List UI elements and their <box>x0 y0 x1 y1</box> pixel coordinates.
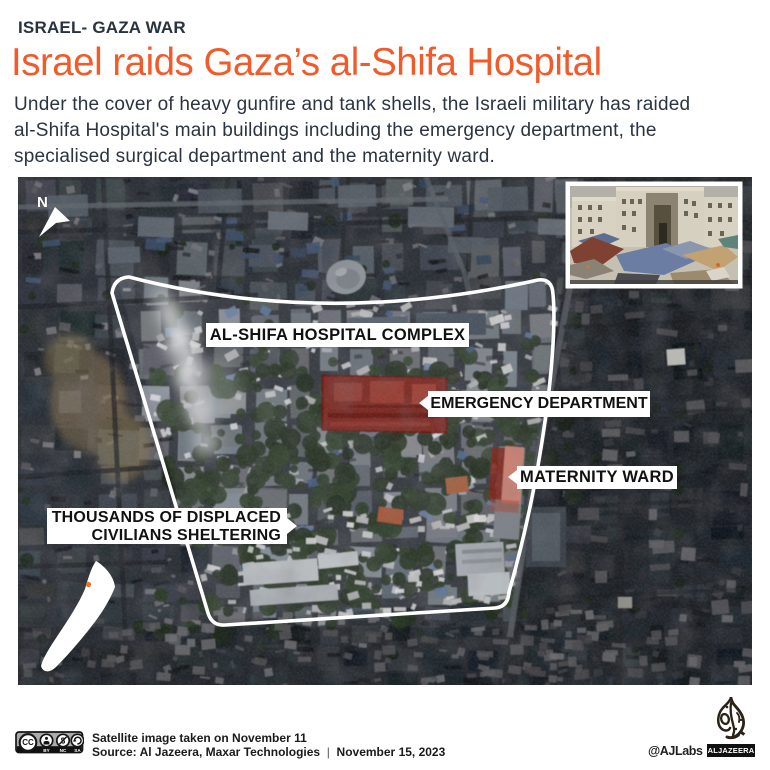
svg-text:N: N <box>37 194 48 211</box>
svg-text:NC: NC <box>60 748 67 753</box>
svg-text:SA: SA <box>74 748 81 753</box>
svg-text:CC: CC <box>22 738 34 747</box>
svg-text:BY: BY <box>43 748 49 753</box>
